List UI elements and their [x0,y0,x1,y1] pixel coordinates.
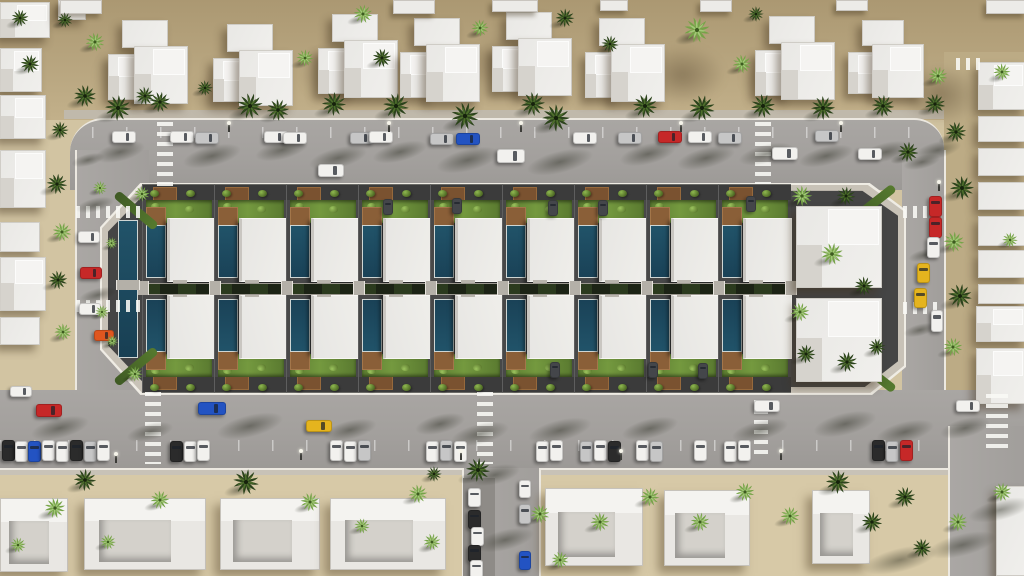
townhouse-unit-top [286,184,359,284]
villa-roof-shade [493,68,503,91]
unit-wood-deck [434,350,454,370]
garden-bush [617,206,626,213]
car-windshield [470,135,474,143]
car-windshield [610,446,619,449]
unit-pool [650,299,670,352]
parked-car [594,440,607,461]
unit-pool [722,299,742,352]
palm-tree [1001,231,1020,250]
unit-pool [218,225,238,278]
unit-wood-deck [362,207,382,227]
villa-roof [978,250,1024,278]
parked-car [56,441,69,462]
palm-tree [295,48,315,68]
courtyard-villa-wing [331,499,445,521]
car-windshield [4,445,13,448]
car-windshield [470,493,479,496]
parked-car [636,440,649,461]
partial-roof [836,0,868,11]
garden-bush [761,206,770,213]
street-lamp-pole [620,452,622,460]
crosswalk [956,58,986,70]
hedge-tuft [618,190,627,197]
garden-bush [689,364,698,371]
car-windshield [93,269,96,277]
villa-roof [976,306,1024,342]
unit-wood-deck [218,207,238,227]
hedge-tuft [726,190,735,197]
parked-car [36,404,62,417]
unit-roof [671,295,720,359]
parked-car [430,133,454,145]
parked-car [698,363,708,379]
palm-tree [685,91,720,126]
hedge-tuft [222,190,231,197]
villa-roof-upper [828,209,879,245]
palm-tree [729,51,755,77]
hedge-tuft [582,190,591,197]
villa-roof-upper [15,98,43,118]
parked-car [694,440,707,461]
garden-bush [401,206,410,213]
unit-pool [578,225,598,278]
car-windshield [652,446,661,449]
unit-roof [599,295,648,359]
hedge-tuft [762,384,771,391]
car-windshield [552,445,561,448]
parked-car [929,196,942,217]
parked-car [618,132,642,144]
villa-roof [862,20,904,46]
car-windshield [632,134,636,142]
villa-roof-upper [153,49,185,75]
villa-roof-shade [1,283,14,310]
parked-car [688,131,712,143]
parked-car [858,148,882,160]
parked-car [70,440,83,461]
partial-roof [492,0,538,12]
villa-roof-shade [782,70,798,99]
parked-car [170,441,183,462]
car-windshield [444,135,448,143]
villa-roof [414,18,460,46]
hedge-tuft [186,190,195,197]
unit-roof [311,218,360,282]
parked-car [97,440,110,461]
townhouse-unit-bottom [430,293,503,393]
car-windshield [346,446,355,449]
townhouse-unit-bottom [502,293,575,393]
compound-content [100,180,906,397]
parked-car [917,263,930,283]
palm-tree [44,171,69,196]
street-lamp-head [459,449,463,453]
parked-car [80,267,102,279]
car-windshield [428,446,437,449]
car-windshield [550,204,556,206]
unit-wood-deck [578,207,598,227]
garden-bush [473,206,482,213]
parked-car [598,200,608,216]
hedge-tuft [402,384,411,391]
car-windshield [933,315,941,318]
parked-car [10,386,32,397]
villa-roof [426,44,480,102]
parked-car [184,441,197,462]
villa-roof [227,24,273,52]
hedge-tuft [510,190,519,197]
garden-bush [185,206,194,213]
car-windshield [600,204,606,206]
palm-tree [777,503,802,528]
villa-roof [0,95,46,139]
car-windshield [126,133,130,141]
spine-bridge [209,281,221,295]
car-windshield [726,446,735,449]
car-windshield [931,201,940,204]
car-windshield [829,132,833,140]
spine-bridge [353,281,365,295]
villa-roof-shade [427,72,443,101]
unit-pool [290,225,310,278]
unit-pool [362,299,382,352]
villa-roof [0,222,40,252]
townhouse-unit-top [142,184,215,284]
car-windshield [702,133,706,141]
hedge-tuft [546,384,555,391]
car-windshield [696,445,705,448]
unit-roof [383,295,432,359]
parked-car [330,440,343,461]
garden-bush [401,364,410,371]
parked-car [195,132,219,144]
villa-roof-shade [1,178,14,207]
hedge-tuft [582,384,591,391]
hedge-tuft [474,190,483,197]
unit-roof [455,295,504,359]
car-windshield [931,222,940,225]
car-windshield [91,233,94,241]
car-windshield [769,402,773,410]
villa-roof-shade [319,70,329,93]
hedge-tuft [690,190,699,197]
spine-bridge [713,281,725,295]
unit-pool [146,299,166,352]
parked-car [573,132,597,144]
unit-wood-deck [506,207,526,227]
car-windshield [872,150,876,158]
street-lamp-head [779,449,783,453]
hedge-tuft [546,190,555,197]
car-windshield [902,445,911,448]
parked-car [746,196,756,212]
car-windshield [333,166,337,175]
car-windshield [385,203,391,205]
unit-wood-deck [362,350,382,370]
car-windshield [596,445,605,448]
parked-car [519,480,531,498]
parked-car [956,400,980,412]
car-windshield [184,133,188,141]
hedge-tuft [366,190,375,197]
villa-roof-upper [537,41,569,67]
townhouse-unit-top [214,184,287,284]
parked-car [886,441,899,462]
car-windshield [332,445,341,448]
garden-bush [329,206,338,213]
villa-roof [978,148,1024,176]
car-windshield [442,445,451,448]
street-lamp-head [937,180,941,184]
car-windshield [919,268,928,271]
car-windshield [17,446,26,449]
palm-tree [99,533,118,552]
hedge-tuft [726,384,735,391]
car-windshield [521,485,529,488]
palm-tree [891,483,919,511]
garden-bush [185,364,194,371]
street-lamp-pole [680,124,682,132]
parked-car [2,440,15,461]
unit-roof [455,218,504,282]
street-lamp-pole [300,452,302,460]
parked-car [470,560,483,576]
parked-car [929,217,942,238]
parked-car [440,440,453,461]
unit-roof [311,295,360,359]
parked-car [28,441,41,462]
townhouse-unit-bottom [214,293,287,393]
street-lamp-pole [938,183,940,191]
unit-pool [506,225,526,278]
hedge-tuft [438,190,447,197]
car-windshield [172,446,181,449]
street-lamp-pole [460,452,462,460]
street-lamp-head [227,121,231,125]
unit-wood-deck [290,350,310,370]
palm-tree [834,349,860,375]
parked-car [170,131,194,143]
parked-car [497,149,525,163]
villa-roof [781,42,835,100]
hedge-tuft [510,384,519,391]
townhouse-unit-bottom [718,293,791,393]
hedge-tuft [654,384,663,391]
hedge-tuft [438,384,447,391]
palm-tree [808,93,839,124]
unit-wood-deck [506,350,526,370]
parked-car [536,441,549,462]
central-landscape-spine [142,283,792,295]
parked-car [197,440,210,461]
hedge-tuft [186,384,195,391]
palm-tree [132,184,153,205]
garden-bush [329,364,338,371]
car-windshield [587,134,591,142]
car-windshield [360,445,369,448]
parked-car [42,440,55,461]
unit-wood-deck [722,350,742,370]
townhouse-unit-top [502,184,575,284]
villa-roof-upper [630,47,662,73]
unit-roof [383,218,432,282]
villa-roof-upper [800,45,832,71]
townhouse-unit-top [646,184,719,284]
garden-bush [617,364,626,371]
parked-car [198,402,226,415]
townhouse-unit-top [574,184,647,284]
parked-car [471,527,484,546]
partial-roof [600,0,628,11]
unit-wood-deck [434,207,454,227]
townhouse-unit-top [358,184,431,284]
street-lamp-pole [780,452,782,460]
parked-car [383,199,393,215]
parked-car [738,440,751,461]
unit-wood-deck [650,207,670,227]
hedge-tuft [294,190,303,197]
hedge-tuft [690,384,699,391]
villa-roof-shade [979,85,993,109]
partial-roof [700,0,732,12]
car-windshield [538,446,547,449]
unit-pool [290,299,310,352]
car-windshield [472,565,481,568]
street-lamp-pole [228,124,230,132]
parked-car [872,440,885,461]
hedge-tuft [258,190,267,197]
garden-bush [689,206,698,213]
unit-pool [434,225,454,278]
hedge-tuft [618,384,627,391]
unit-pool [578,299,598,352]
parked-car [724,441,737,462]
parked-car [369,131,393,143]
car-windshield [787,149,791,158]
townhouse-unit-bottom [142,293,215,393]
garden-bush [257,206,266,213]
car-windshield [321,422,325,430]
parked-car [519,551,531,570]
villa-roof [518,38,572,96]
parked-car [718,132,742,144]
spine-bridge [281,281,293,295]
parked-car [452,198,462,214]
villa-roof-upper [445,47,477,73]
street-lamp-head [387,121,391,125]
street-lamp-pole [520,124,522,132]
unit-roof [599,218,648,282]
car-windshield [650,366,656,368]
unit-wood-deck [290,207,310,227]
parked-car [772,147,798,160]
parked-car [548,200,558,216]
villa-roof-shade [849,72,858,93]
townhouse-unit-bottom [286,293,359,393]
car-windshield [473,532,482,535]
townhouse-unit-top [430,184,503,284]
palm-tree [55,10,75,30]
villa-roof-shade [1,116,14,138]
unit-pool [218,299,238,352]
street-lamp-pole [388,124,390,132]
street-lamp-head [114,452,118,456]
unit-wood-deck [722,207,742,227]
street-lamp-pole [840,124,842,132]
villa-roof-upper [15,153,43,179]
parked-car [580,441,593,462]
palm-tree [104,334,120,350]
courtyard-villa-court [820,513,854,556]
unit-roof [527,218,576,282]
parked-car [914,288,927,308]
street-lamp-head [679,121,683,125]
unit-pool [722,225,742,278]
hedge-tuft [150,384,159,391]
car-windshield [23,388,26,395]
car-windshield [929,242,938,245]
unit-roof [167,295,216,359]
unit-roof [527,295,576,359]
unit-pool [650,225,670,278]
villa-roof-upper [993,351,1023,376]
spine-bridge [641,281,653,295]
palm-tree [464,456,493,485]
car-windshield [209,134,213,142]
parked-car [931,310,943,332]
car-windshield [454,202,460,204]
unit-roof [239,218,288,282]
parked-car [815,130,839,142]
unit-pool [434,299,454,352]
car-windshield [748,200,754,202]
parked-car [84,441,97,462]
car-windshield [58,446,67,449]
hedge-tuft [258,384,267,391]
street-lamp-head [839,121,843,125]
garden-bush [473,364,482,371]
car-windshield [470,549,479,551]
villa-roof [978,116,1024,142]
unit-roof [671,218,720,282]
villa-roof-upper [890,47,921,71]
hedge-tuft [330,384,339,391]
car-windshield [86,446,95,449]
villa-roof-upper [15,260,43,284]
palm-tree [925,63,950,88]
street-lamp-head [619,449,623,453]
car-windshield [44,445,53,448]
villa-roof [978,182,1024,210]
aerial-scene [0,0,1024,576]
parked-car [468,488,481,507]
parked-car [650,441,663,462]
townhouse-unit-bottom [358,293,431,393]
car-windshield [888,446,897,449]
street-lamp-pole [115,455,117,463]
car-windshield [874,445,883,448]
parked-car [426,441,439,462]
parked-car [15,441,28,462]
palm-tree [93,303,111,321]
parked-car [658,131,682,143]
townhouse-unit-bottom [574,293,647,393]
car-windshield [740,445,749,448]
street-lamp-head [519,121,523,125]
car-windshield [470,515,479,518]
hedge-tuft [654,190,663,197]
car-windshield [99,445,108,448]
